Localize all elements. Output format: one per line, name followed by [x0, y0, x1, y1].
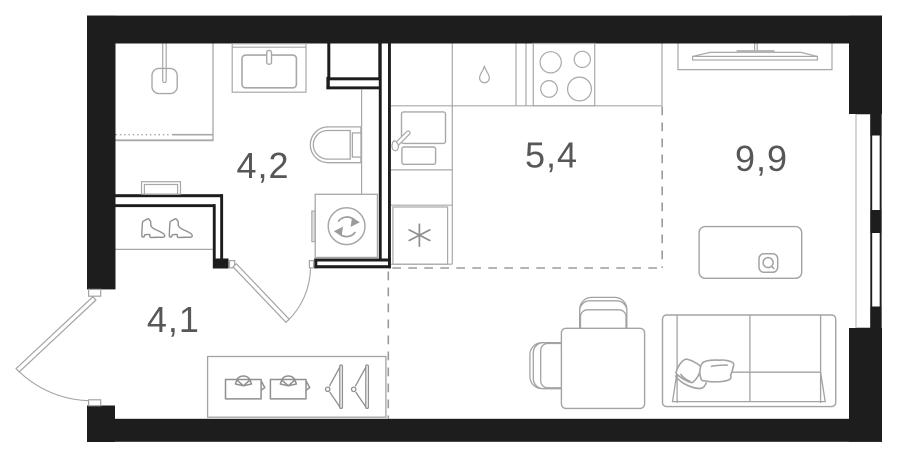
svg-text:4,2: 4,2	[236, 145, 289, 186]
svg-text:5,4: 5,4	[525, 134, 578, 175]
svg-text:9,9: 9,9	[735, 138, 788, 179]
svg-text:4,1: 4,1	[147, 299, 200, 340]
